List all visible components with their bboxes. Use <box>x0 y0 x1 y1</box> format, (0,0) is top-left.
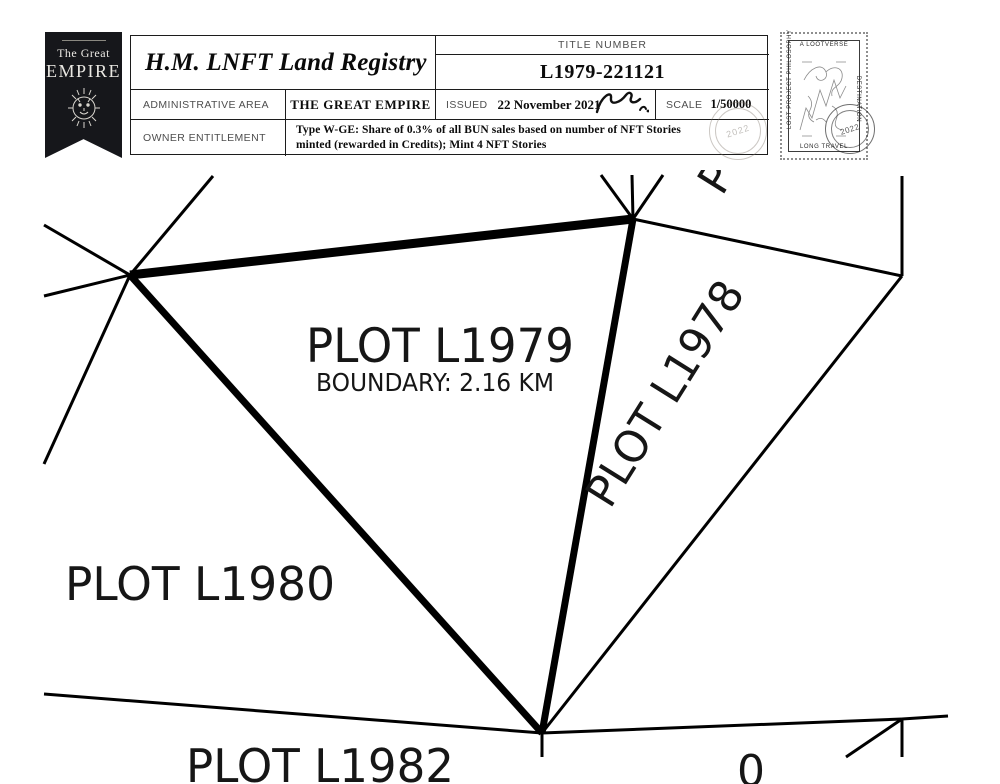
postmark-seal: 2022 <box>825 104 875 154</box>
badge-title-large: EMPIRE <box>46 61 121 82</box>
postage-stamp: A LOOTVERSE LONG TRAVEL LOST PROJECT PHI… <box>780 32 868 160</box>
plot-l1980-label: PLOT L1980 <box>65 557 335 611</box>
scale-label: SCALE <box>666 99 702 111</box>
lion-icon <box>64 86 104 130</box>
issued-label: ISSUED <box>446 99 488 111</box>
stamp-left-text: LOST PROJECT PHILOSOPHY <box>787 69 793 129</box>
plot-l1982-label: PLOT L1982 <box>186 739 454 784</box>
certificate-header-table: H.M. LNFT Land Registry TITLE NUMBER L19… <box>130 35 768 155</box>
owner-entitlement-value: Type W-GE: Share of 0.3% of all BUN sale… <box>296 123 693 153</box>
stamp-top-text: A LOOTVERSE <box>782 42 866 48</box>
issued-date: 22 November 2021 <box>498 97 601 113</box>
badge-title-small: The Great <box>57 46 110 61</box>
notary-seal: 2022 <box>709 102 767 160</box>
issued-cell: ISSUED 22 November 2021 <box>436 90 656 120</box>
plot-partial-bottom-label: 0 <box>737 746 765 784</box>
owner-entitlement-cell: Type W-GE: Share of 0.3% of all BUN sale… <box>286 120 769 156</box>
boundary-lines-thin <box>44 175 948 757</box>
owner-entitlement-label: OWNER ENTITLEMENT <box>131 120 286 156</box>
plot-l1979-label: PLOT L1979 <box>306 319 574 374</box>
registry-title-cell: H.M. LNFT Land Registry <box>131 36 436 90</box>
plot-map: PLOT L1979 BOUNDARY: 2.16 KM PLOT L1980 … <box>0 170 1000 784</box>
admin-area-label: ADMINISTRATIVE AREA <box>131 90 286 120</box>
land-registry-certificate: The Great EMPIRE H.M. <box>0 0 1000 784</box>
admin-area-value: THE GREAT EMPIRE <box>290 97 431 113</box>
signature-icon <box>593 82 649 122</box>
plot-partial-top-label: P <box>688 170 745 203</box>
registry-title: H.M. LNFT Land Registry <box>145 49 427 77</box>
badge-ornament <box>62 40 106 41</box>
boundary-lines-thick <box>130 219 633 733</box>
title-number-label: TITLE NUMBER <box>436 36 769 55</box>
admin-area-cell: THE GREAT EMPIRE <box>286 90 436 120</box>
registry-badge: The Great EMPIRE <box>45 32 122 158</box>
plot-l1979-boundary: BOUNDARY: 2.16 KM <box>316 368 554 397</box>
